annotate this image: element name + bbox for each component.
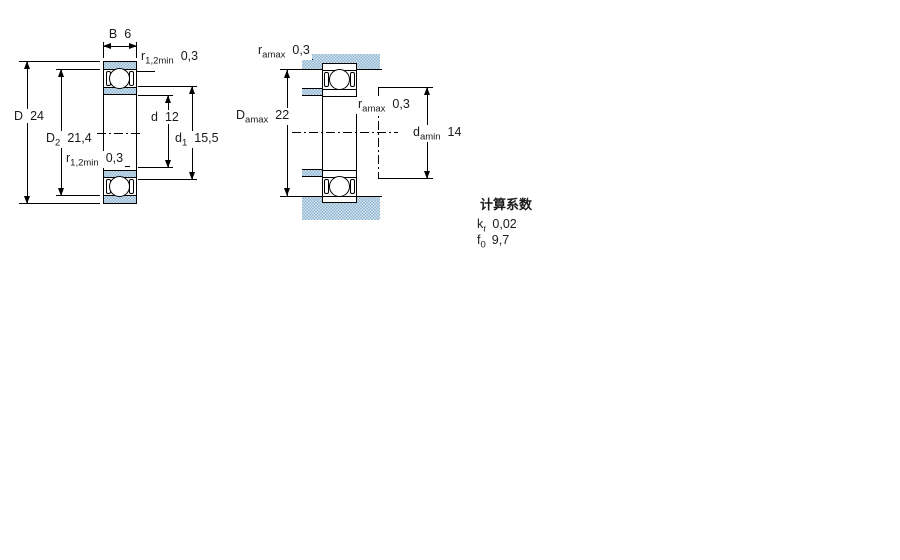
- d-outer-extension-bottom: [19, 203, 100, 204]
- calculation-factors-title: 计算系数: [480, 194, 532, 213]
- ra-mid-label: ramax0,3: [356, 97, 412, 114]
- factor-f0: f09,7: [477, 233, 509, 251]
- b-arrow-left: [103, 43, 111, 49]
- housing-shoulder-line-top-right: [357, 69, 382, 70]
- inner-ring-bore-line-top: [323, 96, 356, 97]
- b-arrow-right: [129, 43, 137, 49]
- ball-top: [109, 68, 130, 89]
- right-axis-centerline: [292, 132, 398, 133]
- d-outer-extension-top: [19, 61, 100, 62]
- damin-label: damin14: [411, 125, 463, 142]
- damin-arrow-bottom: [424, 171, 430, 179]
- damax-arrow-top: [284, 70, 290, 78]
- r-bottom-label: r1,2min0,3: [64, 151, 125, 168]
- shield-bottom-right: [350, 179, 355, 194]
- shaft-shoulder-tab-top: [302, 88, 322, 96]
- ra-top-label: ramax0,3: [256, 43, 312, 60]
- ball-bottom: [329, 176, 350, 197]
- housing-shoulder-line-bottom-right: [357, 196, 382, 197]
- technical-drawing-canvas: B6 D24 D221,4 d12 d115,5 r1,2min0,3 r1,2…: [0, 0, 900, 560]
- shield-top-right: [350, 72, 355, 87]
- factor-kr: kr0,02: [477, 217, 517, 235]
- d-bore-dimension-line: [168, 95, 169, 168]
- housing-shoulder-line-bottom-left: [280, 196, 322, 197]
- damax-dimension-line: [287, 70, 288, 196]
- d1-arrow-top: [189, 86, 195, 94]
- d-outer-dimension-line: [27, 61, 28, 204]
- inner-ring-bore-line-bottom: [323, 170, 356, 171]
- r-top-label: r1,2min0,3: [141, 49, 198, 66]
- damax-label: Damax22: [234, 108, 291, 125]
- d-outer-label: D24: [9, 109, 49, 123]
- damin-arrow-top: [424, 87, 430, 95]
- ball-top: [329, 69, 350, 90]
- d-bore-label: d12: [149, 110, 181, 124]
- left-axis-centerline: [97, 133, 143, 134]
- d1-arrow-bottom: [189, 172, 195, 180]
- d2-arrow-bottom: [58, 188, 64, 196]
- d1-label: d115,5: [173, 131, 221, 148]
- d-bore-arrow-bottom: [165, 160, 171, 168]
- r-top-leader-line: [137, 71, 155, 72]
- ball-bottom: [109, 176, 130, 197]
- d-outer-arrow-top: [24, 61, 30, 69]
- shaft-shoulder-tab-bottom: [302, 169, 322, 177]
- damax-arrow-bottom: [284, 188, 290, 196]
- d-outer-arrow-bottom: [24, 196, 30, 204]
- d-bore-arrow-top: [165, 95, 171, 103]
- right-bearing-outline: [322, 63, 357, 203]
- d2-arrow-top: [58, 69, 64, 77]
- b-dimension-label: B6: [103, 27, 137, 41]
- d2-label: D221,4: [44, 131, 94, 148]
